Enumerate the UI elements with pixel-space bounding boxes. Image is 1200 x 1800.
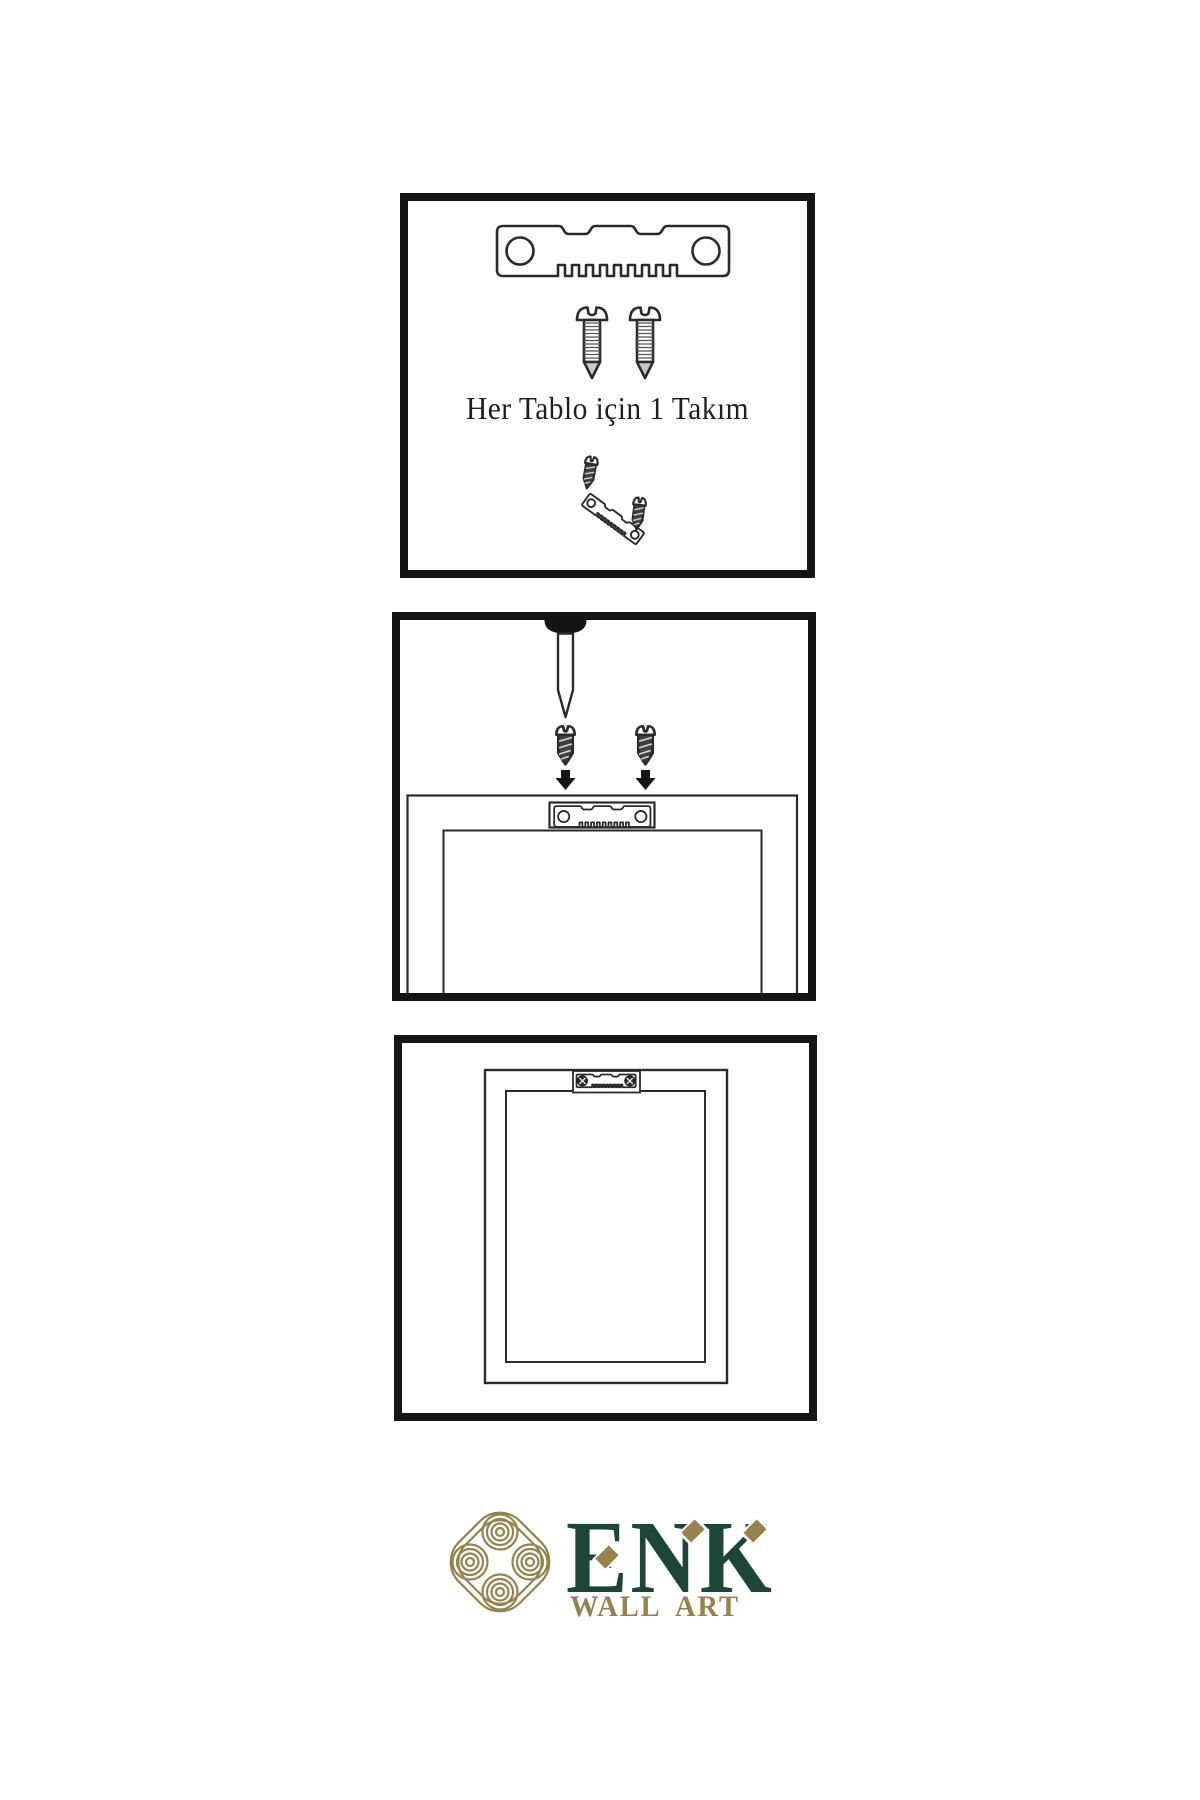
screw-icon — [556, 726, 574, 764]
screw-into-hanger-icon — [581, 456, 647, 545]
screw-icon — [577, 308, 607, 379]
step-2-panel — [392, 612, 816, 1001]
knot-lobe — [513, 1545, 548, 1580]
hanging-instruction-sheet: Her Tablo için 1 Takım — [0, 0, 1200, 1800]
hardware-kit-diagram — [408, 201, 807, 570]
brand-tagline: WALL ART — [570, 1592, 740, 1622]
arrow-down-icon — [636, 770, 656, 790]
knot-lobe — [453, 1545, 488, 1580]
frame-back-icon — [408, 796, 798, 994]
sawtooth-hanger-icon — [497, 226, 729, 276]
screw-icon — [630, 308, 660, 379]
mounted-sawtooth-hanger-icon — [573, 1071, 640, 1093]
sawtooth-hanger-icon — [554, 806, 650, 827]
screw-icon — [636, 726, 654, 764]
hung-frame-diagram — [402, 1043, 809, 1413]
knot-lobe — [483, 1575, 518, 1610]
wall-nail-icon — [545, 620, 587, 717]
arrow-down-icon — [556, 770, 576, 790]
knot-monogram-icon — [436, 1498, 564, 1626]
phillips-screw-head-icon — [577, 1076, 587, 1086]
wall-mounting-diagram — [400, 620, 808, 993]
step-3-panel — [394, 1035, 817, 1421]
knot-lobe — [483, 1515, 518, 1550]
framed-picture-icon — [485, 1070, 727, 1383]
phillips-screw-head-icon — [625, 1076, 635, 1086]
step-1-panel: Her Tablo için 1 Takım — [400, 193, 815, 578]
kit-caption: Her Tablo için 1 Takım — [424, 391, 791, 425]
